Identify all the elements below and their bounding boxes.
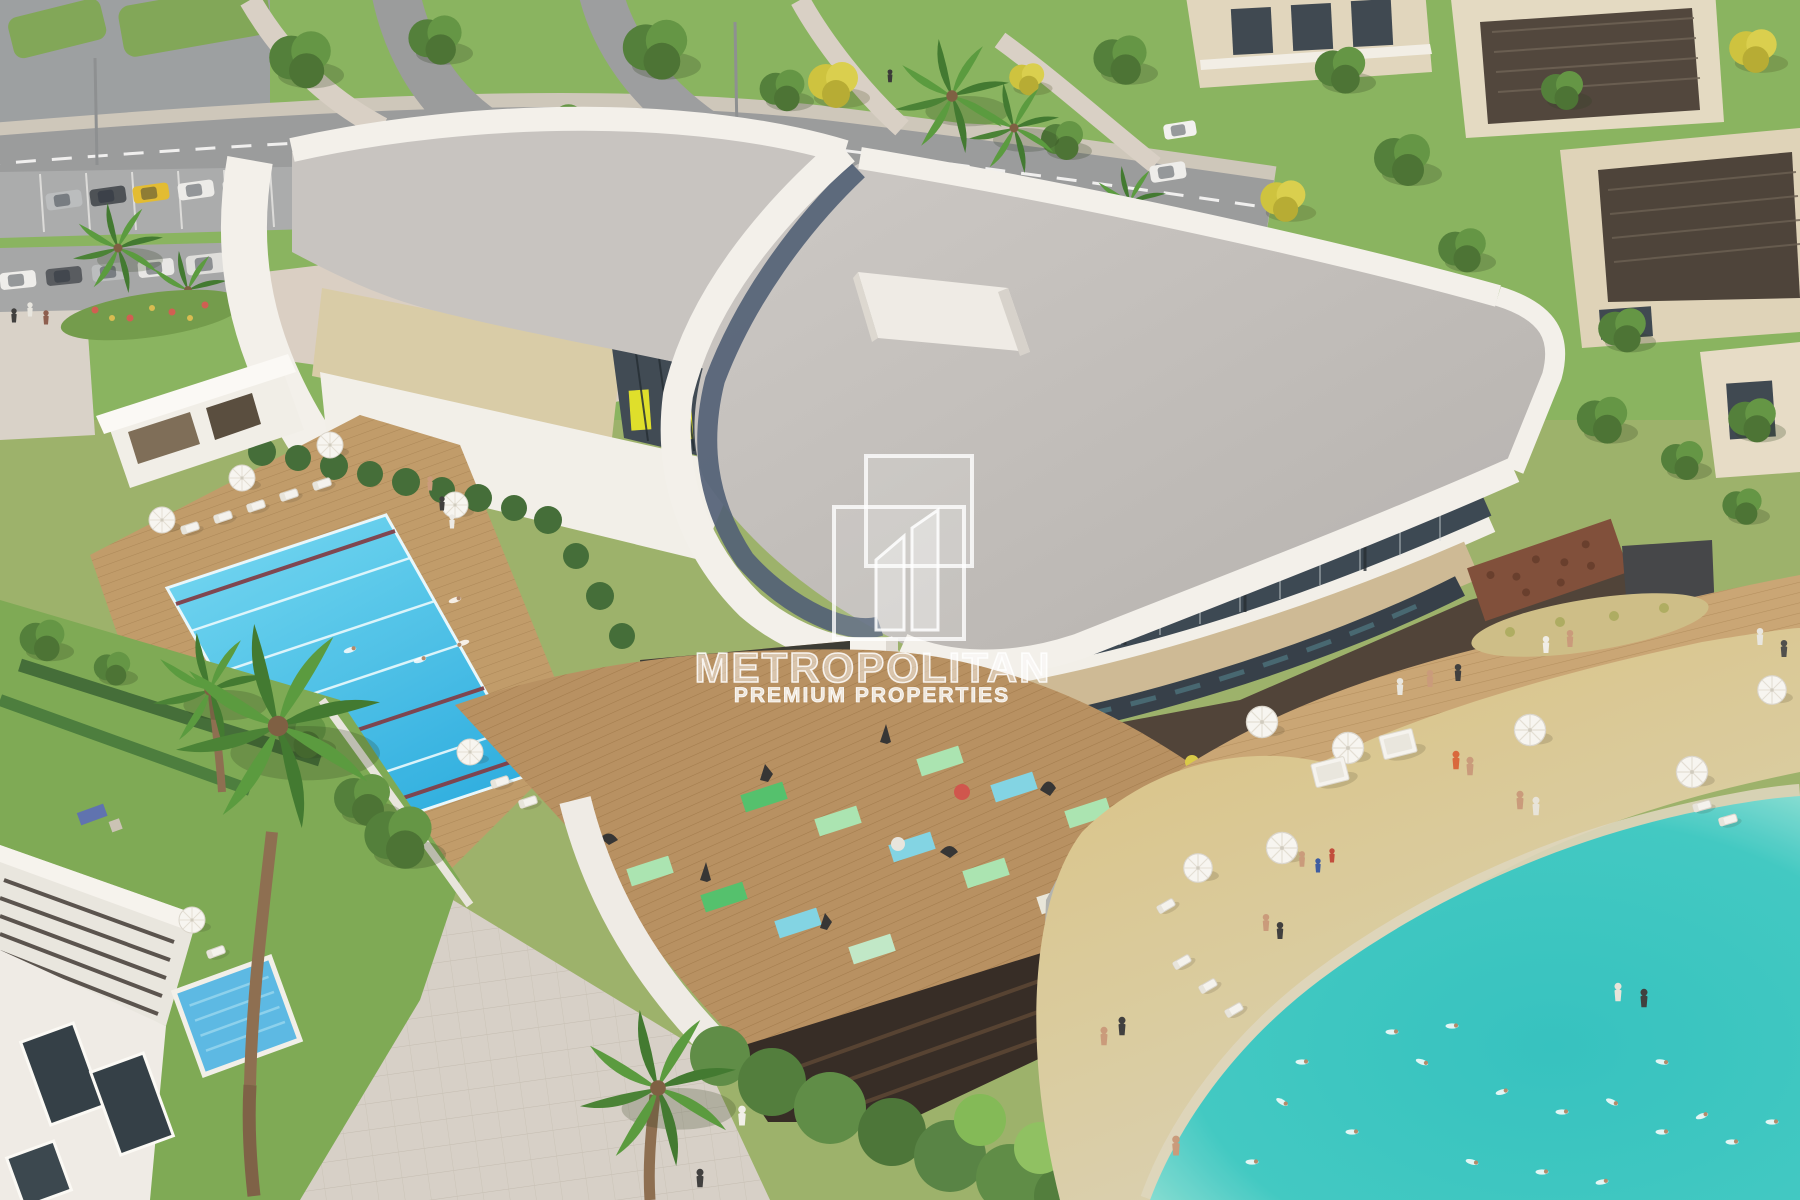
light-wash — [0, 0, 1800, 1200]
scene-canvas — [0, 0, 1800, 1200]
render-image: METROPOLITAN PREMIUM PROPERTIES — [0, 0, 1800, 1200]
